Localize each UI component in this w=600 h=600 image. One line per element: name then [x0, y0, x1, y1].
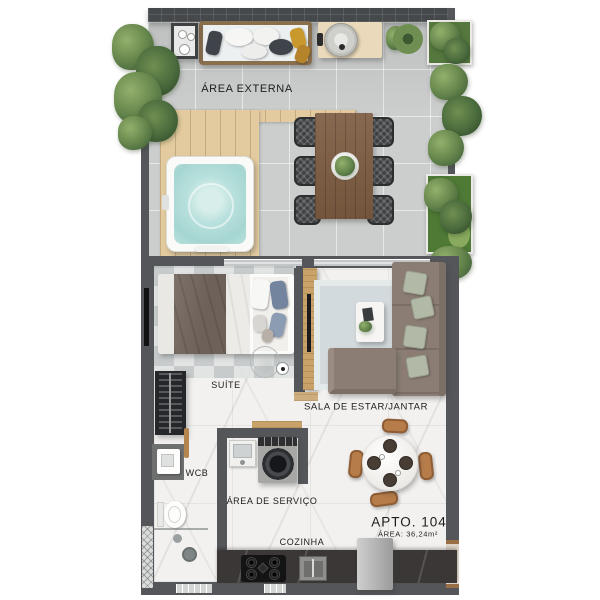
hot-tub-inner-ring	[188, 183, 234, 229]
round-dining-table	[362, 435, 418, 491]
burner	[269, 557, 280, 568]
bottom-window	[264, 584, 286, 593]
decor-vase-center	[281, 367, 285, 371]
plate	[383, 439, 397, 453]
cooktop	[241, 555, 286, 582]
sofa-cushion-sage	[402, 270, 427, 295]
sink-basin	[161, 454, 174, 467]
service-wall-right	[298, 428, 308, 484]
round-table-chair	[382, 418, 409, 433]
kitchen-sink	[299, 556, 327, 581]
wardrobe	[155, 371, 186, 435]
sofa-cushion	[225, 28, 253, 46]
cooktop-knob	[257, 562, 268, 573]
toilet-bowl	[168, 506, 181, 523]
bathroom-window	[142, 526, 153, 588]
apartment-number: APTO. 104	[371, 515, 447, 530]
shower-drain	[182, 547, 197, 562]
table-centerpiece	[331, 152, 359, 180]
toilet	[164, 501, 186, 528]
sofa-cushion-sage	[403, 325, 428, 350]
outdoor-sofa	[199, 21, 312, 65]
floor-plan: ÁREA EXTERNA SUÍTE SALA DE ESTAR/JANTAR …	[0, 0, 600, 600]
laundry-tank	[229, 440, 256, 467]
apartment-area: ÁREA: 36,24m²	[378, 530, 438, 539]
bed-duvet	[174, 274, 226, 354]
washing-machine	[258, 437, 297, 483]
room-label-cozinha: COZINHA	[280, 537, 325, 547]
washer-door	[262, 448, 294, 480]
shower-drain-small	[173, 534, 182, 543]
bathroom-sink	[157, 449, 180, 474]
service-shelf	[252, 421, 302, 428]
shower-partition	[154, 528, 208, 530]
hot-tub-control	[162, 195, 169, 210]
bed-duvet-stripe	[226, 274, 250, 354]
top-brick-wall	[148, 8, 452, 22]
decor-plant-sketch	[250, 346, 280, 378]
garden-plant	[430, 64, 468, 100]
round-table-chair	[418, 451, 435, 480]
coffee-table-tray	[362, 307, 374, 321]
tank-basin	[233, 444, 252, 458]
plate	[179, 44, 190, 55]
sliding-glass-door-suite	[224, 259, 302, 266]
hanging-plant	[393, 24, 423, 54]
hot-tub	[166, 156, 254, 252]
glass	[379, 454, 385, 460]
burner	[269, 569, 280, 580]
cup	[187, 33, 195, 41]
suite-tv	[144, 288, 149, 346]
door-threshold	[294, 392, 318, 401]
room-label-wcb: WCB	[186, 468, 209, 478]
door-jamb	[446, 584, 459, 588]
sofa-cushion-sage	[410, 295, 435, 320]
fridge	[357, 538, 393, 590]
plate	[399, 456, 413, 470]
cup	[178, 30, 187, 39]
glass	[395, 470, 401, 476]
living-tv	[307, 294, 311, 352]
side-table	[171, 23, 198, 59]
bottom-window	[176, 584, 212, 593]
dark-throw-pillow	[269, 39, 293, 55]
hot-tub-step	[195, 246, 229, 252]
door-jamb	[446, 540, 459, 544]
decor-vase	[276, 362, 289, 375]
wardrobe-hangers	[159, 373, 182, 433]
room-label-suite: SUÍTE	[211, 380, 241, 390]
burner	[246, 557, 257, 568]
door-leaf	[184, 428, 189, 458]
grill-handle	[317, 33, 323, 46]
grill	[324, 23, 358, 57]
sofa-cushion	[241, 44, 267, 59]
room-label-sala: SALA DE ESTAR/JANTAR	[304, 402, 428, 413]
grill-knob	[339, 44, 345, 50]
sofa-cushion-sage	[405, 354, 429, 378]
service-wall-left	[217, 428, 227, 552]
tank-drain	[240, 460, 245, 465]
coffee-table	[356, 302, 384, 342]
centerpiece-plant	[335, 156, 355, 176]
toilet-tank	[157, 502, 164, 527]
faucet	[312, 559, 314, 577]
garden-plant	[428, 130, 464, 166]
sofa-chaise	[328, 348, 396, 394]
bed-foot-sheet	[158, 274, 174, 354]
room-label-area-externa: ÁREA EXTERNA	[201, 83, 293, 95]
bed	[158, 274, 294, 354]
room-label-area-servico: ÁREA DE SERVIÇO	[227, 496, 318, 506]
coffee-table-plant	[359, 321, 372, 332]
burner	[246, 569, 257, 580]
washer-controls	[258, 437, 297, 446]
dark-throw-pillow	[205, 30, 224, 56]
